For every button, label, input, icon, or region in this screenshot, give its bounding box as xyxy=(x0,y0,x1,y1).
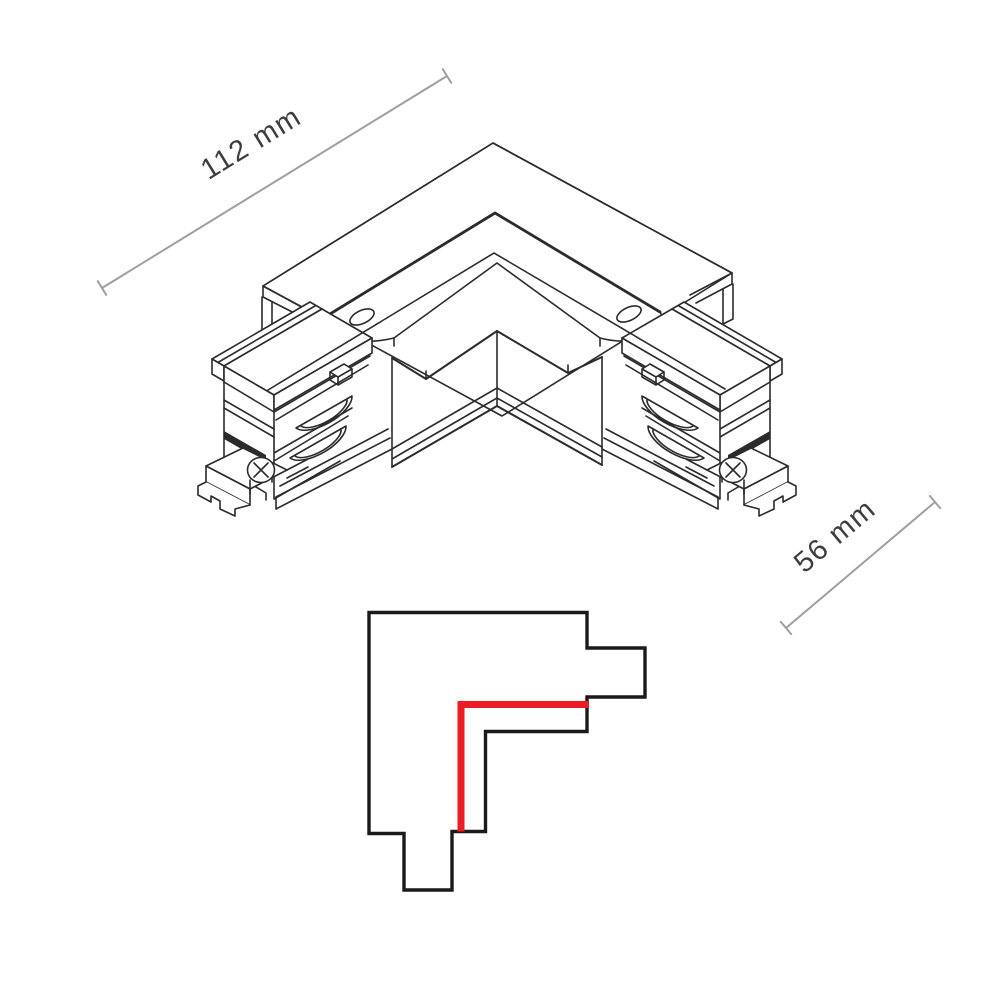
page: { "dimensions": { "width_label": "112 mm… xyxy=(0,0,1000,1000)
dimension-label-56mm: 56 mm xyxy=(788,493,882,580)
schematic-outline xyxy=(369,613,645,891)
cover-plate-right-leg xyxy=(723,284,733,324)
body-lower-chevron-3 xyxy=(392,406,602,467)
bracket-rail-joint xyxy=(287,459,308,478)
plan-schematic xyxy=(369,613,645,891)
left-track-end-block xyxy=(198,302,392,516)
technical-drawing-canvas: 112 mm 56 mm xyxy=(0,0,1000,1000)
schematic-conductor-red xyxy=(461,705,589,832)
dimension-56mm: 56 mm xyxy=(781,493,940,634)
isometric-view xyxy=(198,143,796,516)
